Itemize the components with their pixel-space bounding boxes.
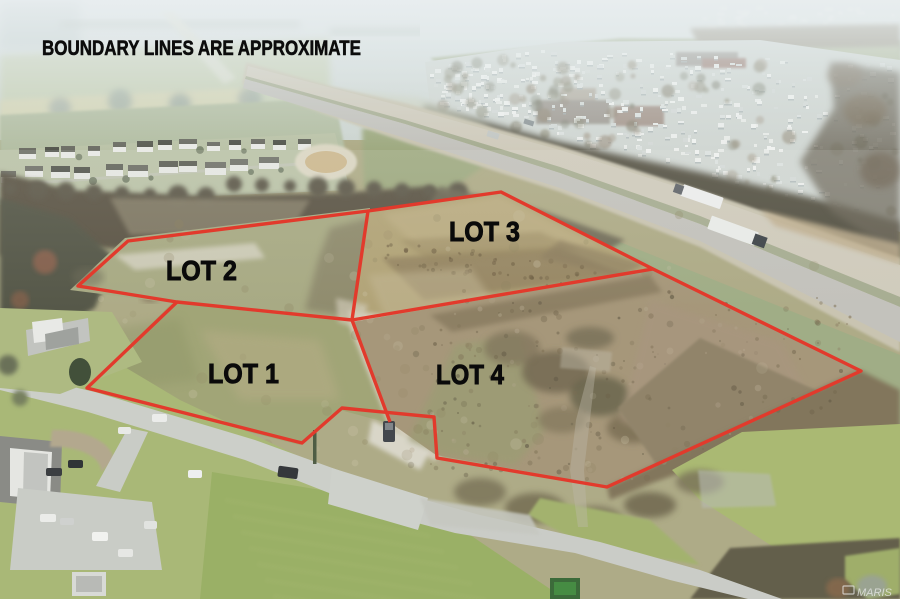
svg-text:LOT 4: LOT 4: [436, 359, 504, 390]
svg-text:LOT 1: LOT 1: [208, 358, 279, 389]
svg-text:MARIS: MARIS: [857, 587, 893, 599]
svg-text:LOT 3: LOT 3: [449, 216, 520, 247]
svg-text:LOT 2: LOT 2: [166, 255, 237, 286]
svg-text:BOUNDARY LINES ARE APPROXIMATE: BOUNDARY LINES ARE APPROXIMATE: [42, 37, 361, 60]
